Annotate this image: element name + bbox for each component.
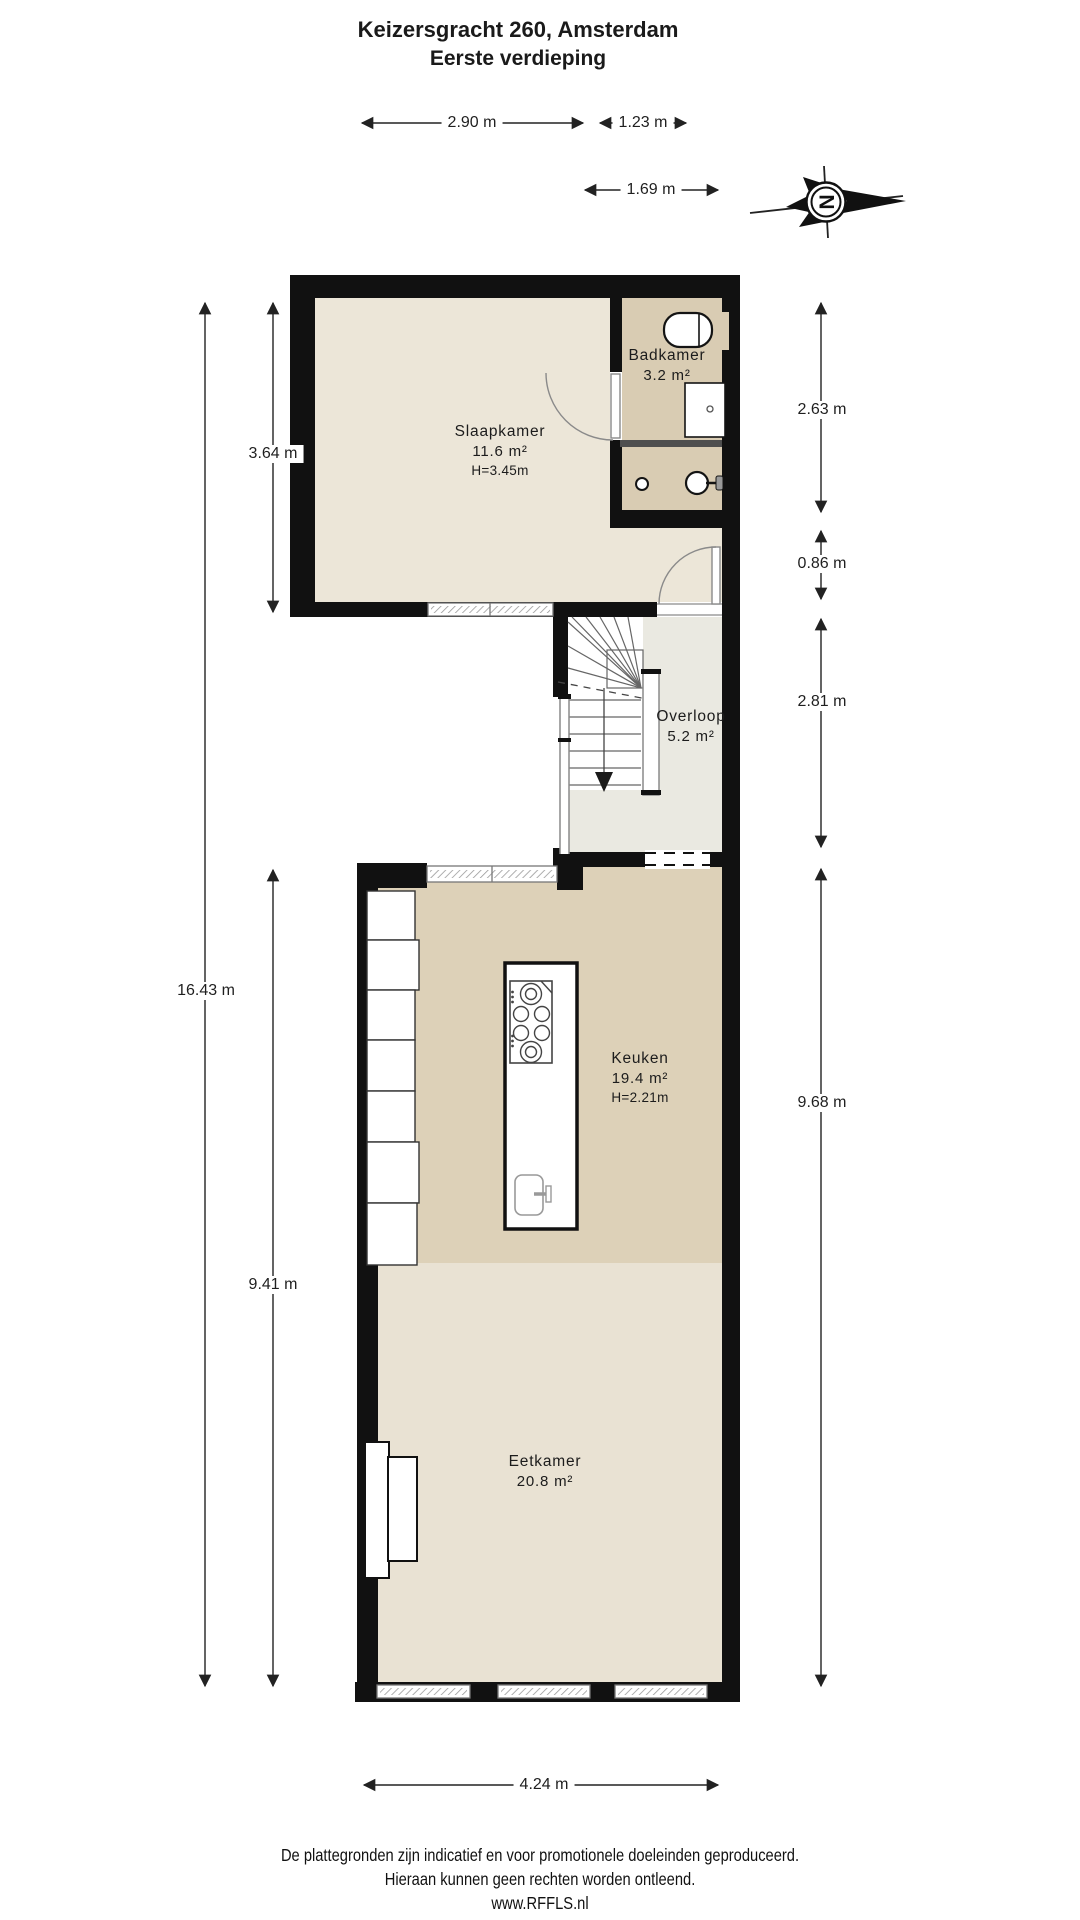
- floor-drain: [636, 478, 648, 490]
- slaapkamer-height: H=3.45m: [455, 462, 546, 480]
- badkamer-partition: [620, 440, 722, 447]
- badkamer-area: 3.2 m²: [628, 366, 705, 386]
- overloop-area: 5.2 m²: [656, 727, 725, 747]
- compass-letter: N: [815, 194, 838, 209]
- label-keuken: Keuken 19.4 m² H=2.21m: [611, 1049, 668, 1107]
- dim-right-overloop: 2.81 m: [792, 693, 853, 711]
- toilet-fixture: [664, 313, 712, 347]
- dim-left-total: 16.43 m: [171, 982, 241, 1000]
- shower-fixture: [685, 383, 725, 437]
- overloop-name: Overloop: [656, 707, 725, 727]
- dim-bottom-width: 4.24 m: [514, 1776, 575, 1794]
- keuken-window: [427, 866, 557, 882]
- dim-right-badkamer: 2.63 m: [792, 401, 853, 419]
- dim-left-lower: 9.41 m: [243, 1276, 304, 1294]
- slaapkamer-name: Slaapkamer: [455, 422, 546, 442]
- kitchen-cabinets: [367, 891, 419, 1265]
- compass-icon: N: [750, 166, 906, 238]
- label-slaapkamer: Slaapkamer 11.6 m² H=3.45m: [455, 422, 546, 480]
- dim-top-left: 2.90 m: [442, 114, 503, 132]
- label-eetkamer: Eetkamer 20.8 m²: [509, 1452, 582, 1492]
- eetkamer-name: Eetkamer: [509, 1452, 582, 1472]
- label-overloop: Overloop 5.2 m²: [656, 707, 725, 747]
- dim-top-right: 1.23 m: [613, 114, 674, 132]
- floorplan-drawing: N: [0, 0, 1080, 1920]
- eetkamer-window-1: [377, 1685, 470, 1698]
- floorplan-page: Keizersgracht 260, Amsterdam Eerste verd…: [0, 0, 1080, 1920]
- eetkamer-window-2: [498, 1685, 590, 1698]
- chimney-breast: [365, 1442, 417, 1578]
- footer-line-3: www.RFFLS.nl: [162, 1891, 918, 1915]
- keuken-height: H=2.21m: [611, 1089, 668, 1107]
- footer-line-2: Hieraan kunnen geen rechten worden ontle…: [162, 1867, 918, 1891]
- slaapkamer-area: 11.6 m²: [455, 442, 546, 462]
- dim-right-strip: 0.86 m: [792, 555, 853, 573]
- room-slaapkamer-strip: [612, 528, 722, 604]
- keuken-area: 19.4 m²: [611, 1069, 668, 1089]
- badkamer-name: Badkamer: [628, 346, 705, 366]
- label-badkamer: Badkamer 3.2 m²: [628, 346, 705, 386]
- keuken-opening: [645, 850, 710, 869]
- dim-left-slaapkamer: 3.64 m: [243, 445, 304, 463]
- eetkamer-area: 20.8 m²: [509, 1472, 582, 1492]
- footer-disclaimer: De plattegronden zijn indicatief en voor…: [162, 1843, 918, 1915]
- dim-top-inner: 1.69 m: [621, 181, 682, 199]
- stove-fixture: [510, 981, 552, 1063]
- dim-right-lower: 9.68 m: [792, 1094, 853, 1112]
- stair-railing-left: [558, 694, 571, 859]
- eetkamer-window-3: [615, 1685, 707, 1698]
- slaapkamer-window: [428, 603, 553, 616]
- footer-line-1: De plattegronden zijn indicatief en voor…: [162, 1843, 918, 1867]
- keuken-name: Keuken: [611, 1049, 668, 1069]
